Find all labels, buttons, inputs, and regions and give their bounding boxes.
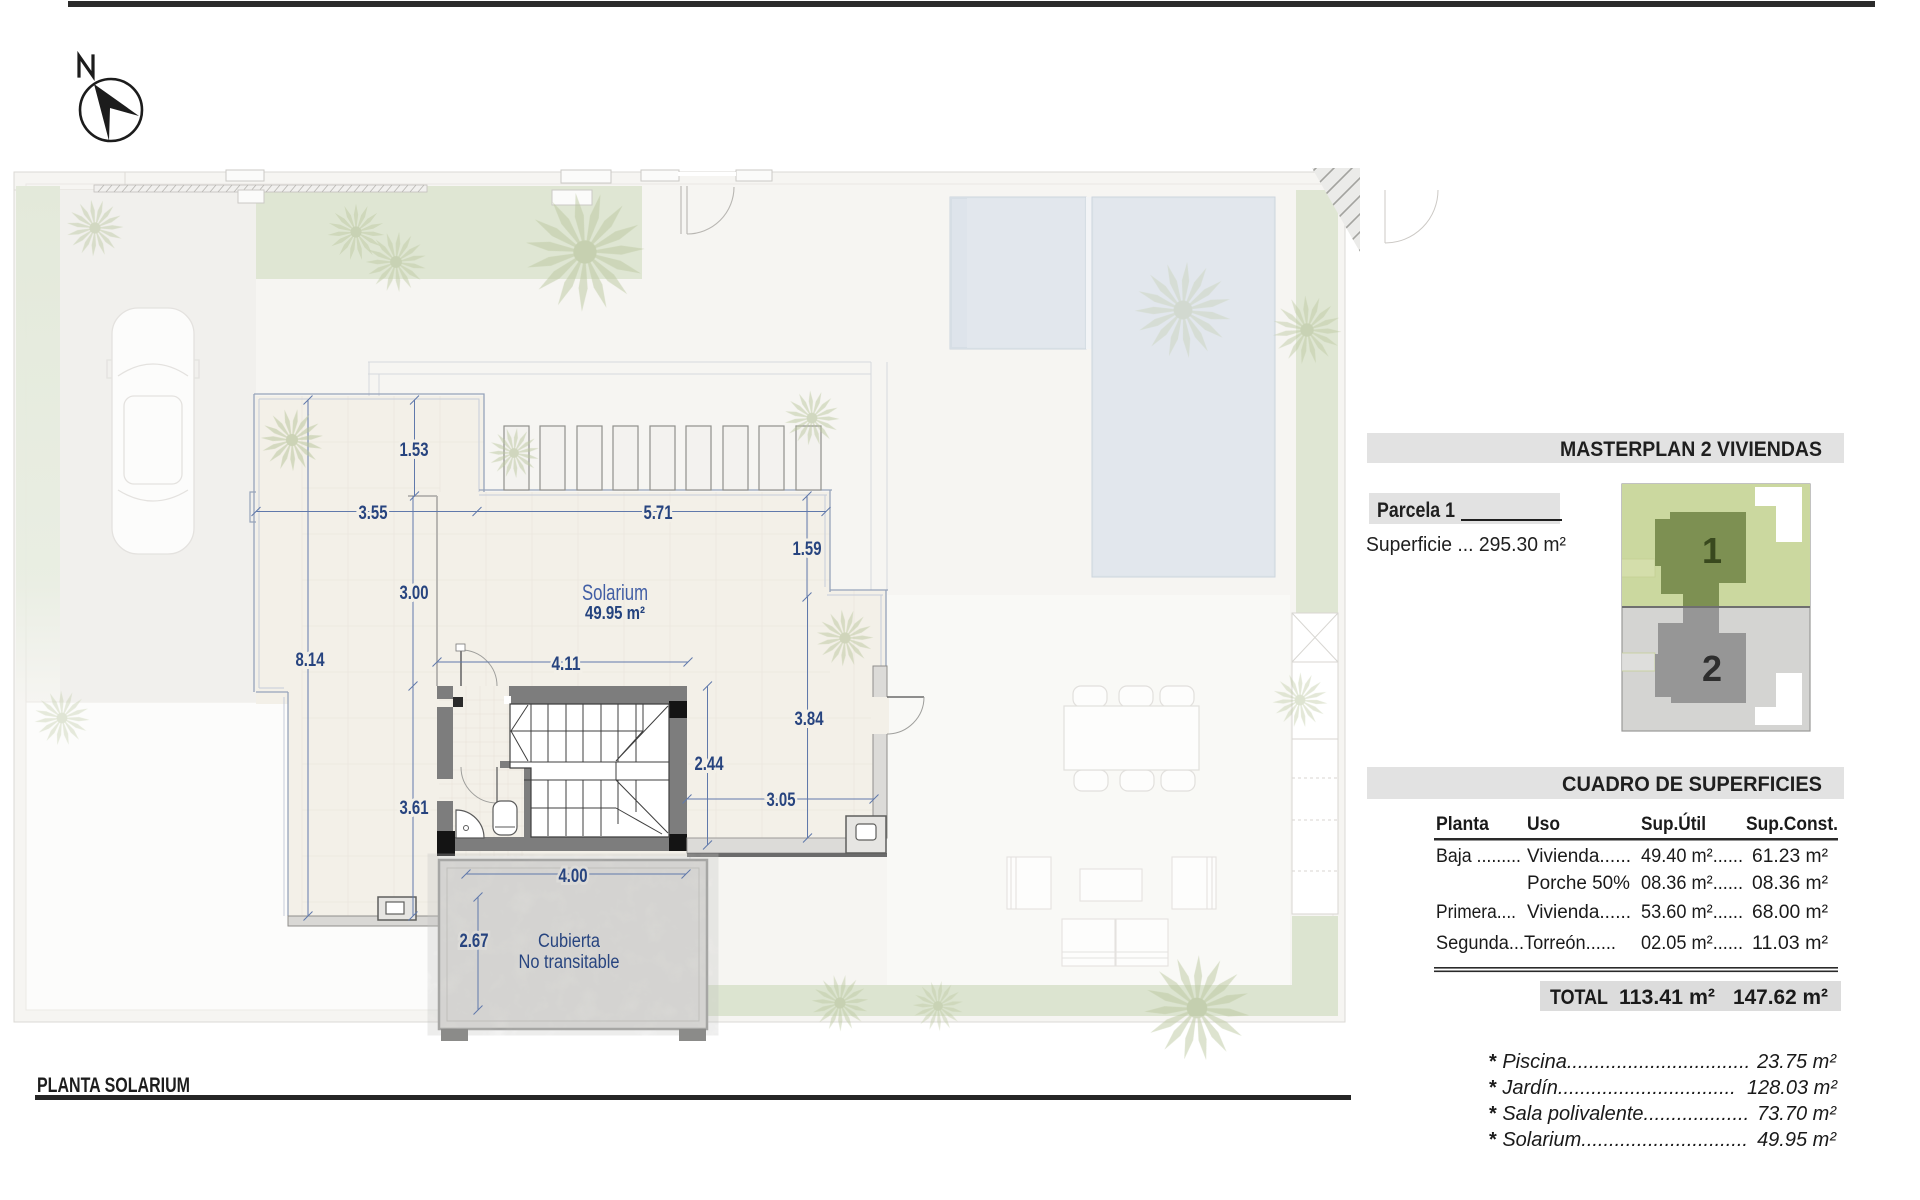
svg-text:02.05 m²......: 02.05 m²......	[1641, 933, 1743, 954]
svg-text:Parcela 1: Parcela 1	[1377, 499, 1455, 522]
svg-text:PLANTA SOLARIUM: PLANTA SOLARIUM	[37, 1073, 190, 1097]
svg-text:Superficie ... 295.30 m²: Superficie ... 295.30 m²	[1366, 534, 1566, 556]
svg-text:* Solarium....................: * Solarium..............................	[1489, 1129, 1748, 1151]
svg-text:128.03 m²: 128.03 m²	[1747, 1077, 1838, 1099]
svg-text:3.84: 3.84	[795, 709, 824, 730]
svg-text:2.44: 2.44	[695, 754, 724, 775]
svg-text:113.41 m²: 113.41 m²	[1619, 985, 1715, 1009]
svg-text:* Sala polivalente............: * Sala polivalente...................	[1489, 1103, 1749, 1125]
svg-text:08.36 m²......: 08.36 m²......	[1641, 873, 1743, 894]
svg-text:3.00: 3.00	[400, 583, 429, 604]
svg-text:3.61: 3.61	[400, 798, 429, 819]
svg-text:53.60 m²......: 53.60 m²......	[1641, 902, 1743, 923]
svg-text:2.67: 2.67	[460, 931, 489, 952]
svg-text:61.23 m²: 61.23 m²	[1752, 846, 1828, 867]
svg-text:* Piscina.....................: * Piscina...............................…	[1489, 1051, 1750, 1073]
svg-text:1: 1	[1702, 530, 1722, 571]
svg-text:TOTAL: TOTAL	[1550, 985, 1608, 1009]
svg-text:Porche 50%: Porche 50%	[1527, 873, 1630, 894]
svg-text:11.03 m²: 11.03 m²	[1752, 933, 1828, 954]
svg-text:23.75 m²: 23.75 m²	[1756, 1051, 1837, 1073]
svg-text:Cubierta: Cubierta	[538, 931, 600, 952]
svg-text:4.11: 4.11	[552, 654, 581, 675]
svg-text:49.95 m²: 49.95 m²	[1757, 1129, 1837, 1151]
svg-text:Vivienda......: Vivienda......	[1527, 846, 1631, 867]
svg-text:147.62 m²: 147.62 m²	[1733, 985, 1828, 1009]
svg-text:* Jardín......................: * Jardín................................	[1489, 1077, 1736, 1099]
svg-text:2: 2	[1702, 648, 1722, 689]
svg-text:49.95 m²: 49.95 m²	[585, 603, 645, 623]
svg-text:Vivienda......: Vivienda......	[1527, 902, 1631, 923]
svg-text:3.55: 3.55	[359, 503, 388, 524]
svg-text:Planta: Planta	[1436, 813, 1489, 835]
svg-text:Uso: Uso	[1527, 813, 1560, 835]
svg-text:CUADRO DE SUPERFICIES: CUADRO DE SUPERFICIES	[1562, 773, 1822, 796]
svg-text:Sup.Const.: Sup.Const.	[1746, 813, 1838, 835]
svg-text:08.36 m²: 08.36 m²	[1752, 873, 1828, 894]
svg-text:68.00 m²: 68.00 m²	[1752, 902, 1828, 923]
svg-text:Primera....: Primera....	[1436, 902, 1516, 923]
svg-text:73.70 m²: 73.70 m²	[1757, 1103, 1837, 1125]
svg-text:49.40 m²......: 49.40 m²......	[1641, 846, 1743, 867]
svg-text:4.00: 4.00	[559, 866, 588, 887]
svg-text:8.14: 8.14	[296, 650, 325, 671]
svg-text:3.05: 3.05	[767, 790, 796, 811]
svg-text:5.71: 5.71	[644, 503, 673, 524]
svg-text:No transitable: No transitable	[519, 952, 620, 973]
svg-text:MASTERPLAN 2 VIVIENDAS: MASTERPLAN 2 VIVIENDAS	[1560, 438, 1822, 461]
svg-text:Solarium: Solarium	[582, 580, 648, 605]
svg-text:Baja .........: Baja .........	[1436, 846, 1521, 867]
svg-text:1.53: 1.53	[400, 440, 429, 461]
svg-text:Sup.Útil: Sup.Útil	[1641, 811, 1706, 835]
svg-text:1.59: 1.59	[793, 539, 822, 560]
svg-text:Segunda...Torreón......: Segunda...Torreón......	[1436, 933, 1616, 954]
